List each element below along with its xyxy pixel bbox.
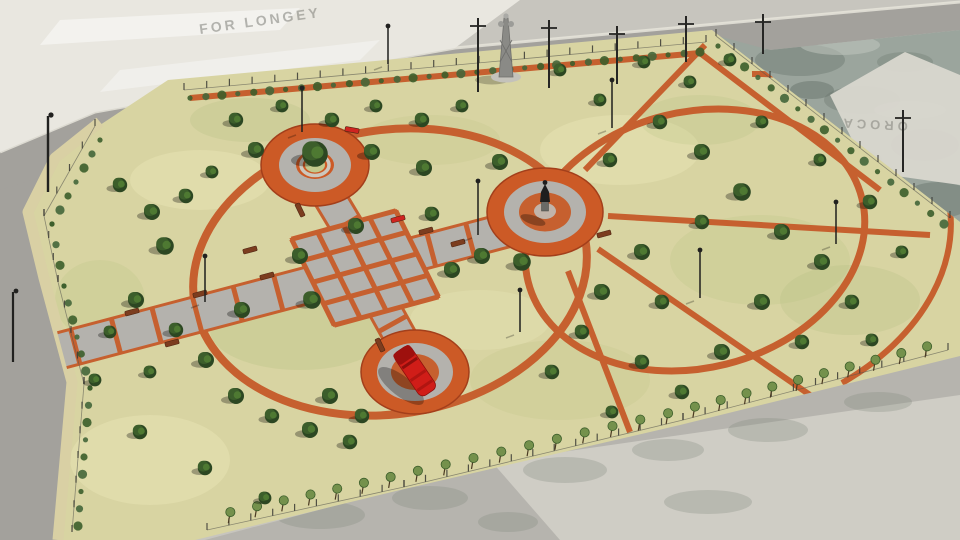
lawn-patch xyxy=(70,415,230,505)
sapling-crown xyxy=(768,382,777,391)
tree-foliage xyxy=(280,102,286,108)
concrete-stain xyxy=(392,486,468,510)
hedge-shrub xyxy=(441,71,448,78)
hedge-shrub xyxy=(88,150,95,157)
tree-foliage xyxy=(240,305,248,313)
tree-foliage xyxy=(498,157,506,165)
tower-top-detail xyxy=(508,21,514,27)
sapling-crown xyxy=(306,490,315,499)
tree-foliage xyxy=(203,464,210,471)
hedge-shrub xyxy=(78,350,85,357)
tree-foliage xyxy=(234,116,241,123)
hedge-shrub xyxy=(78,489,83,494)
tree-foliage xyxy=(328,391,336,399)
tree-foliage xyxy=(162,241,170,249)
hedge-shrub xyxy=(600,56,609,65)
sapling-crown xyxy=(279,496,288,505)
lamp-head xyxy=(698,248,703,253)
tree-foliage xyxy=(150,207,158,215)
tree-foliage xyxy=(174,326,181,333)
tree-foliage xyxy=(480,251,488,259)
sapling-crown xyxy=(226,507,235,516)
tree-foliage xyxy=(270,412,277,419)
hedge-shrub xyxy=(217,91,226,100)
tree-foliage xyxy=(900,248,906,254)
tree-foliage xyxy=(420,116,427,123)
tower-top-detail xyxy=(498,21,504,27)
sapling-crown xyxy=(525,441,534,450)
concrete-stain xyxy=(632,439,704,461)
hedge-shrub xyxy=(202,93,209,100)
tree-foliage xyxy=(688,78,694,84)
tree-foliage xyxy=(850,298,857,305)
hedge-shrub xyxy=(235,91,240,96)
tree-foliage xyxy=(254,145,262,153)
tree-foliage xyxy=(680,388,687,395)
lamp-head xyxy=(518,288,523,293)
tree-foliage xyxy=(760,297,768,305)
hedge-shrub xyxy=(64,192,71,199)
tree-foliage xyxy=(370,147,378,155)
hedge-shrub xyxy=(427,74,432,79)
concrete-stain xyxy=(523,457,607,483)
tree-foliage xyxy=(700,218,707,225)
sapling-crown xyxy=(871,355,880,364)
hedge-shrub xyxy=(80,453,87,460)
tree-foliage xyxy=(118,181,125,188)
hedge-shrub xyxy=(715,43,720,48)
hedge-shrub xyxy=(666,52,671,57)
sapling-crown xyxy=(794,375,803,384)
tree-foliage xyxy=(330,116,337,123)
hedge-shrub xyxy=(379,78,384,83)
tree-foliage xyxy=(550,368,557,375)
tree-foliage xyxy=(422,163,430,171)
hedge-shrub xyxy=(847,147,854,154)
sapling-crown xyxy=(690,402,699,411)
sapling-crown xyxy=(497,447,506,456)
tree-foliage xyxy=(204,355,212,363)
sapling-crown xyxy=(845,362,854,371)
tree-foliage xyxy=(298,251,306,259)
hedge-shrub xyxy=(537,63,544,70)
sapling-crown xyxy=(716,395,725,404)
tree-foliage xyxy=(660,298,667,305)
lamp-head xyxy=(300,86,305,91)
hedge-shrub xyxy=(55,205,64,214)
sapling-crown xyxy=(608,421,617,430)
tower-top-detail xyxy=(503,13,508,18)
tree-foliage xyxy=(818,156,824,162)
hedge-shrub xyxy=(585,59,592,66)
tree-foliage xyxy=(354,221,362,229)
sapling-crown xyxy=(636,415,645,424)
tree-foliage xyxy=(608,156,615,163)
hedge-shrub xyxy=(55,261,64,270)
tree-foliage xyxy=(430,210,437,217)
sapling-crown xyxy=(897,348,906,357)
concrete-stain xyxy=(728,418,808,442)
tree-foliage xyxy=(598,96,604,102)
lamp-head xyxy=(386,24,391,29)
tree-foliage xyxy=(640,247,648,255)
tree-foliage xyxy=(642,58,648,64)
hedge-shrub xyxy=(875,169,880,174)
hedge-shrub xyxy=(915,201,920,206)
tree-foliage xyxy=(360,412,367,419)
hedge-shrub xyxy=(887,179,894,186)
hedge-shrub xyxy=(939,219,948,228)
tree-foliage xyxy=(311,146,323,158)
sapling-crown xyxy=(580,428,589,437)
sapling-crown xyxy=(469,453,478,462)
hedge-shrub xyxy=(73,521,82,530)
hedge-shrub xyxy=(695,47,704,56)
hedge-shrub xyxy=(76,505,83,512)
hedge-shrub xyxy=(570,61,575,66)
hedge-shrub xyxy=(456,69,465,78)
tree-foliage xyxy=(870,336,876,342)
hedge-shrub xyxy=(97,137,102,142)
tree-foliage xyxy=(210,168,216,174)
hedge-shrub xyxy=(81,366,90,375)
hedge-shrub xyxy=(795,106,800,111)
concrete-stain xyxy=(664,490,752,514)
tree-foliage xyxy=(460,102,466,108)
sapling-crown xyxy=(413,466,422,475)
hedge-shrub xyxy=(860,157,869,166)
sapling-crown xyxy=(742,389,751,398)
tree-foliage xyxy=(720,347,728,355)
hedge-shrub xyxy=(927,210,934,217)
hedge-shrub xyxy=(900,188,909,197)
hedge-shrub xyxy=(68,315,77,324)
sapling-crown xyxy=(386,472,395,481)
sapling-crown xyxy=(819,369,828,378)
hedge-shrub xyxy=(74,334,79,339)
hedge-shrub xyxy=(768,84,775,91)
tree-foliage xyxy=(134,295,142,303)
lamp-head xyxy=(834,200,839,205)
street-light-head xyxy=(14,289,19,294)
hedge-shrub xyxy=(331,83,336,88)
tree-foliage xyxy=(600,287,608,295)
sapling-crown xyxy=(923,342,932,351)
sapling-crown xyxy=(664,409,673,418)
sapling-crown xyxy=(359,478,368,487)
hedge-shrub xyxy=(835,138,840,143)
statue-pedestal xyxy=(542,201,549,211)
tree-foliage xyxy=(820,257,828,265)
tree-foliage xyxy=(263,494,269,500)
tree-foliage xyxy=(760,118,766,124)
tree-foliage xyxy=(234,391,242,399)
hedge-shrub xyxy=(79,163,88,172)
tree-foliage xyxy=(658,118,665,125)
tree-foliage xyxy=(148,368,154,374)
sapling-crown xyxy=(552,434,561,443)
park-render-screenshot: FOR LONGEY OROCA xyxy=(0,0,960,540)
park-render-scene: FOR LONGEY OROCA xyxy=(0,0,960,540)
hedge-shrub xyxy=(820,125,829,134)
tree-foliage xyxy=(868,198,875,205)
hedge-shrub xyxy=(49,221,54,226)
hedge-shrub xyxy=(361,78,370,87)
hedge-shrub xyxy=(78,470,87,479)
statue-figure-head xyxy=(543,180,548,185)
hedge-shrub xyxy=(187,95,192,100)
concrete-stain xyxy=(844,392,912,412)
hedge-shrub xyxy=(808,116,815,123)
street-light-head xyxy=(48,112,53,117)
hedge-shrub xyxy=(755,75,760,80)
tree-foliage xyxy=(700,147,708,155)
hedge-shrub xyxy=(618,57,623,62)
hedge-shrub xyxy=(346,80,353,87)
tree-foliage xyxy=(93,376,99,382)
hedge-shrub xyxy=(265,86,274,95)
hedge-shrub xyxy=(250,89,257,96)
hedge-shrub xyxy=(409,73,418,82)
tree-foliage xyxy=(308,425,316,433)
tree-foliage xyxy=(558,66,564,72)
statue-plaza xyxy=(487,168,603,256)
tree-foliage xyxy=(739,187,747,195)
tree-foliage xyxy=(348,438,355,445)
tree-foliage xyxy=(580,328,587,335)
tree-foliage xyxy=(728,56,734,62)
hedge-shrub xyxy=(313,82,322,91)
tree-foliage xyxy=(374,102,380,108)
tree-foliage xyxy=(309,295,317,303)
tree-foliage xyxy=(640,358,647,365)
hedge-shrub xyxy=(65,299,72,306)
tree-foliage xyxy=(610,408,616,414)
tree-foliage xyxy=(108,328,114,334)
lamp-head xyxy=(610,78,615,83)
lamp-head xyxy=(203,254,208,259)
hedge-shrub xyxy=(52,241,59,248)
hedge-shrub xyxy=(740,62,749,71)
tree-foliage xyxy=(450,265,458,273)
hedge-shrub xyxy=(73,179,78,184)
hedge-shrub xyxy=(522,65,527,70)
tree-foliage xyxy=(780,227,788,235)
tree-foliage xyxy=(519,257,527,265)
concrete-stain xyxy=(478,512,538,532)
sapling-crown xyxy=(333,484,342,493)
hedge-shrub xyxy=(283,87,288,92)
lamp-head xyxy=(476,179,481,184)
tree-foliage xyxy=(184,192,191,199)
tree-foliage xyxy=(138,428,145,435)
hedge-shrub xyxy=(780,94,789,103)
hedge-shrub xyxy=(85,402,92,409)
tree-foliage xyxy=(800,338,807,345)
hedge-shrub xyxy=(82,418,91,427)
sapling-crown xyxy=(441,460,450,469)
hedge-shrub xyxy=(394,76,401,83)
hedge-shrub xyxy=(61,283,66,288)
hedge-shrub xyxy=(83,437,88,442)
